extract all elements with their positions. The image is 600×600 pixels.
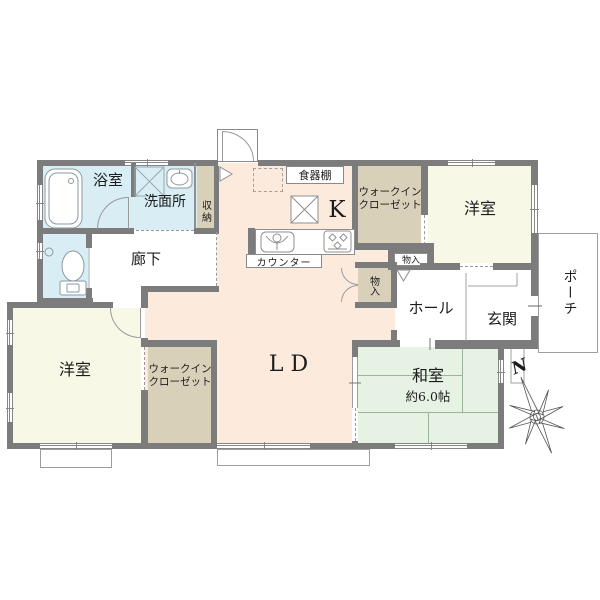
sliding-door-gap <box>400 341 435 347</box>
opening-dashed <box>355 408 356 441</box>
wall <box>498 383 504 449</box>
compass-n-label: N <box>503 353 537 383</box>
mono-hall-label: 物入 <box>402 253 420 266</box>
wall <box>391 270 397 285</box>
wic-bottom-floor <box>148 347 212 443</box>
wall <box>531 316 538 342</box>
wall <box>352 340 400 347</box>
window <box>448 160 495 166</box>
wall <box>214 166 219 232</box>
wall <box>86 232 92 248</box>
sliding-door-gap <box>352 357 358 408</box>
wall <box>391 262 397 308</box>
pantry-dashed-box <box>253 168 283 192</box>
floor-plan: 物入 食器棚 カウンター <box>0 0 600 600</box>
window <box>40 443 112 449</box>
window <box>531 185 538 233</box>
porch-label: ポーチ <box>560 258 578 328</box>
window <box>7 320 13 345</box>
window <box>37 185 43 220</box>
shuno-label: 収納 <box>198 194 211 230</box>
wall <box>352 441 358 449</box>
cupboard-label-box: 食器棚 <box>286 166 344 184</box>
genkan-floor <box>468 270 531 342</box>
wall <box>112 443 217 449</box>
wall <box>7 345 13 393</box>
hall-label: ホール <box>400 299 462 318</box>
opening-dashed <box>144 347 145 390</box>
kitchen-counter <box>255 229 355 255</box>
wall <box>37 160 43 185</box>
back-door-leaf <box>222 131 223 161</box>
yoshitsu-top-label: 洋室 <box>452 199 508 219</box>
cupboard-label: 食器棚 <box>299 167 332 183</box>
counter-label-box: カウンター <box>246 254 322 268</box>
wall <box>420 263 460 270</box>
opening-dashed <box>136 230 194 231</box>
terrace-outline <box>40 449 112 468</box>
opening-dashed <box>424 215 425 245</box>
wall <box>352 340 358 357</box>
wall <box>493 263 538 270</box>
wall <box>168 160 218 166</box>
wall <box>7 302 113 308</box>
window <box>37 243 43 259</box>
wall <box>141 286 219 292</box>
terrace-outline <box>217 449 370 466</box>
window <box>395 443 467 449</box>
wall <box>37 160 125 166</box>
wall <box>531 160 538 185</box>
corridor-label: 廊下 <box>122 250 170 269</box>
wall <box>211 340 217 449</box>
washroom-label: 洗面所 <box>134 194 196 212</box>
kitchen-label: K <box>322 196 352 225</box>
wall <box>531 273 538 296</box>
bath-label: 浴室 <box>84 171 132 190</box>
wic-bottom-label: ウォークイン クローゼット <box>146 363 214 389</box>
opening-dashed <box>460 266 493 267</box>
yoshitsu-bottom-label: 洋室 <box>45 360 105 380</box>
bedroom-door-leaf <box>140 308 141 338</box>
compass-icon <box>493 367 577 465</box>
window <box>217 443 310 449</box>
opening-dashed <box>216 232 217 286</box>
wall <box>435 340 538 349</box>
tatami-line <box>462 345 463 412</box>
genkan-label: 玄関 <box>478 310 526 329</box>
mono-ld-label: 物入 <box>366 271 379 301</box>
toilet-floor <box>40 232 90 298</box>
ld-label: LD <box>262 351 322 379</box>
wall <box>141 390 148 449</box>
bath-door-leaf <box>128 197 129 229</box>
front-door-gap <box>531 296 538 316</box>
wic-top-label: ウォークイン クローゼット <box>356 186 424 212</box>
window <box>7 393 13 422</box>
wall <box>141 302 148 308</box>
washitsu-size-label: 約6.0帖 <box>396 389 460 405</box>
tatami-line <box>428 412 429 443</box>
washitsu-label: 和室 <box>400 366 456 386</box>
wall <box>141 340 217 347</box>
counter-label: カウンター <box>257 254 312 269</box>
wall <box>7 443 40 449</box>
